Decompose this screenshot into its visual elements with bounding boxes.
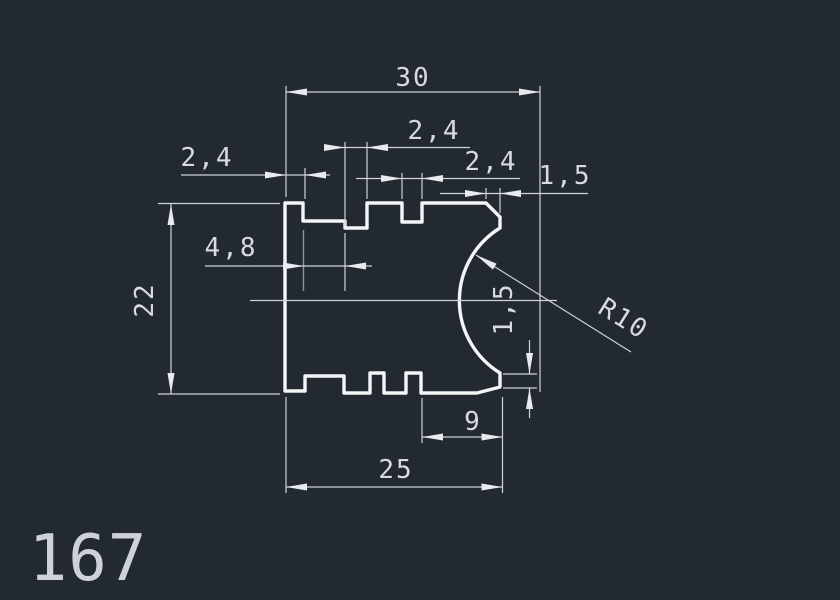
arrowhead	[422, 175, 443, 182]
profile-outline	[285, 203, 500, 393]
dim-bottom-notch-9: 9	[422, 398, 503, 443]
dim-label-24-right: 2,4	[465, 147, 518, 177]
dim-top-ledge-48: 4,8	[205, 230, 372, 291]
arrowhead	[367, 144, 388, 151]
arrowhead	[345, 263, 366, 270]
dim-label-24-left: 2,4	[181, 143, 234, 173]
dim-label-15-right: 1,5	[489, 283, 519, 336]
arrowhead	[265, 172, 286, 179]
dim-top-left-tooth-24: 2,4	[181, 143, 330, 199]
arrowhead	[286, 89, 307, 96]
dim-top-slot1-24: 2,4	[324, 116, 470, 226]
arrowhead	[500, 190, 521, 197]
dim-top-slot2-24: 2,4	[356, 147, 520, 199]
arrowhead	[519, 89, 540, 96]
arrowhead	[168, 373, 175, 394]
arrowhead	[283, 263, 304, 270]
dim-label-9: 9	[464, 407, 482, 437]
dim-label-r10: R10	[593, 292, 654, 346]
arrowhead	[168, 204, 175, 225]
arrowhead	[465, 190, 486, 197]
arrowhead	[526, 388, 533, 409]
dim-label-48: 4,8	[205, 233, 258, 263]
arrowhead	[324, 144, 345, 151]
dim-label-24-mid: 2,4	[408, 116, 461, 146]
arrowhead	[422, 434, 443, 441]
arrowhead	[476, 255, 497, 270]
dim-label-25: 25	[378, 455, 413, 485]
arrowhead	[286, 484, 307, 491]
drawing-viewport: 30 22 2,4 4,8 2,4	[0, 0, 840, 600]
dim-label-22: 22	[130, 282, 160, 317]
dim-width-30: 30	[286, 63, 540, 392]
dim-label-15-top: 1,5	[539, 161, 592, 191]
cad-canvas[interactable]: 30 22 2,4 4,8 2,4	[0, 0, 840, 600]
dim-label-30: 30	[395, 63, 430, 93]
arrowhead	[482, 484, 503, 491]
arrowhead	[381, 175, 402, 182]
part-number-label: 167	[29, 522, 148, 596]
arrowhead	[482, 434, 503, 441]
dim-right-face-15: 1,5	[489, 283, 537, 418]
arrowhead	[305, 172, 326, 179]
arrowhead	[526, 353, 533, 374]
